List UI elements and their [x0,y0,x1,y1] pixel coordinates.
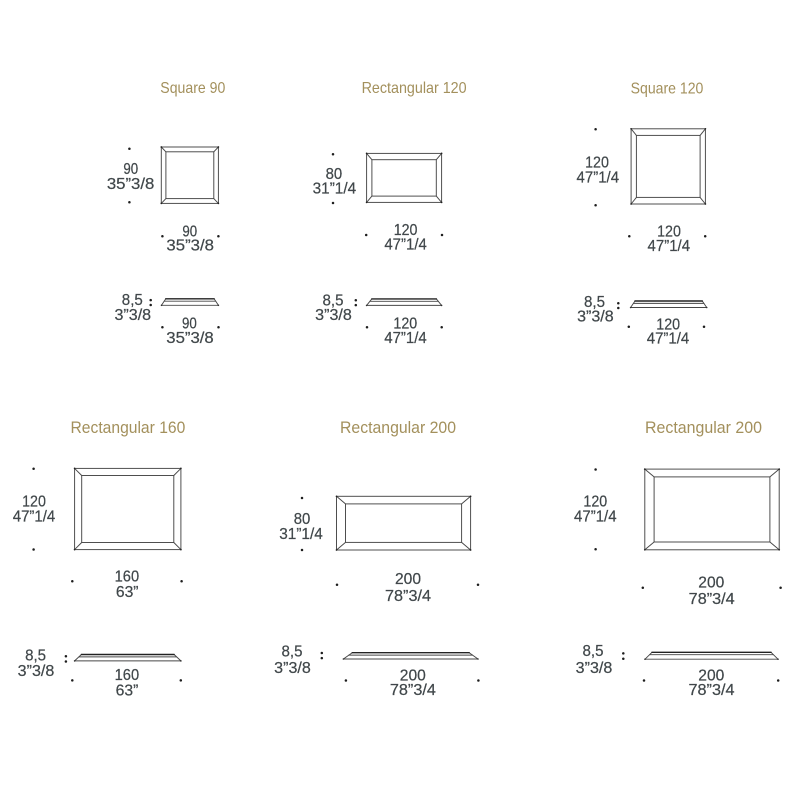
svg-text:78”3/4: 78”3/4 [385,588,431,605]
svg-text:35”3/8: 35”3/8 [166,238,214,255]
svg-text:78”3/4: 78”3/4 [390,682,436,699]
svg-text:3”3/8: 3”3/8 [315,307,352,324]
svg-text:200: 200 [698,574,724,591]
svg-text:47”1/4: 47”1/4 [384,237,427,254]
svg-text:47”1/4: 47”1/4 [647,330,690,347]
svg-text:3”3/8: 3”3/8 [18,663,55,680]
svg-text:Square 90: Square 90 [160,80,225,97]
svg-text:31”1/4: 31”1/4 [313,181,357,198]
svg-text:3”3/8: 3”3/8 [274,660,311,677]
svg-text:3”3/8: 3”3/8 [576,660,613,677]
svg-text:160: 160 [115,568,140,585]
svg-text:3”3/8: 3”3/8 [577,309,614,326]
svg-text:8,5: 8,5 [282,643,303,660]
svg-text:63”: 63” [116,584,139,601]
svg-text:47”1/4: 47”1/4 [648,238,691,255]
svg-text:3”3/8: 3”3/8 [115,307,152,324]
svg-text:Rectangular 200: Rectangular 200 [340,418,456,437]
svg-text:Rectangular 200: Rectangular 200 [645,418,762,437]
svg-text:78”3/4: 78”3/4 [689,682,735,699]
svg-text:Square 120: Square 120 [631,80,704,97]
svg-text:35”3/8: 35”3/8 [166,330,214,347]
svg-text:35”3/8: 35”3/8 [107,176,155,193]
svg-text:200: 200 [395,571,421,588]
svg-text:63”: 63” [116,683,139,700]
svg-text:Rectangular 120: Rectangular 120 [362,80,467,97]
svg-text:47”1/4: 47”1/4 [577,169,620,186]
svg-text:78”3/4: 78”3/4 [689,591,735,608]
svg-text:47”1/4: 47”1/4 [13,509,56,526]
svg-text:Rectangular 160: Rectangular 160 [71,418,186,437]
svg-text:47”1/4: 47”1/4 [574,509,617,526]
svg-text:31”1/4: 31”1/4 [279,526,323,543]
svg-text:47”1/4: 47”1/4 [384,330,427,347]
svg-text:160: 160 [115,667,140,684]
svg-text:8,5: 8,5 [583,643,604,660]
